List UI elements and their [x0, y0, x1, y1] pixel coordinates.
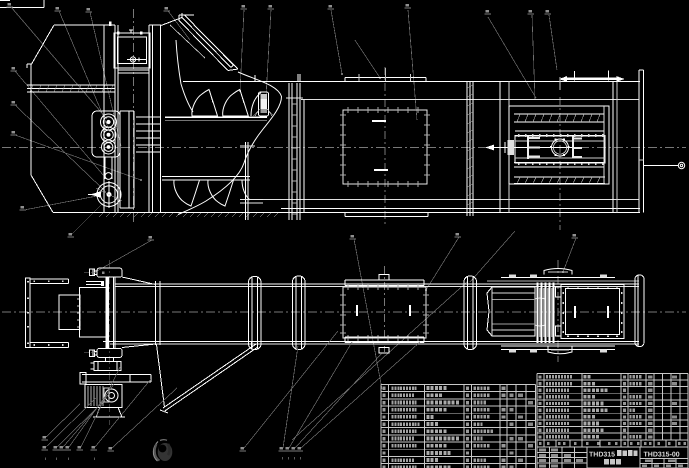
svg-text:THD315-00: THD315-00 — [643, 452, 679, 459]
svg-text:THD315: THD315 — [589, 452, 615, 459]
